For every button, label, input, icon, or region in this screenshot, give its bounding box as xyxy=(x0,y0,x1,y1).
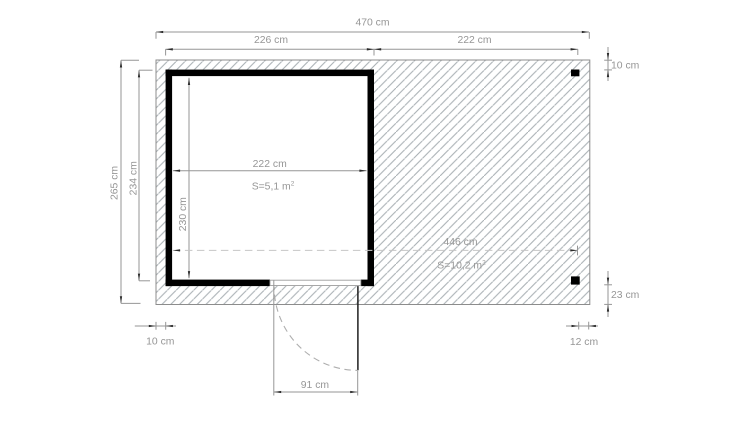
svg-text:10 cm: 10 cm xyxy=(611,61,639,72)
svg-text:10 cm: 10 cm xyxy=(146,337,174,348)
svg-text:265 cm: 265 cm xyxy=(110,166,121,200)
svg-text:222 cm: 222 cm xyxy=(457,35,491,46)
svg-text:226 cm: 226 cm xyxy=(254,35,288,46)
svg-text:470 cm: 470 cm xyxy=(355,18,389,29)
svg-text:S=5,1 m2: S=5,1 m2 xyxy=(252,181,295,193)
svg-text:23 cm: 23 cm xyxy=(611,290,639,301)
svg-text:222 cm: 222 cm xyxy=(253,159,287,170)
svg-text:12 cm: 12 cm xyxy=(570,337,598,348)
svg-text:446 cm: 446 cm xyxy=(443,237,477,248)
svg-text:234 cm: 234 cm xyxy=(129,161,140,195)
svg-text:S=10,2 m2: S=10,2 m2 xyxy=(437,260,486,272)
svg-text:91 cm: 91 cm xyxy=(301,380,329,391)
svg-text:230 cm: 230 cm xyxy=(178,197,189,231)
